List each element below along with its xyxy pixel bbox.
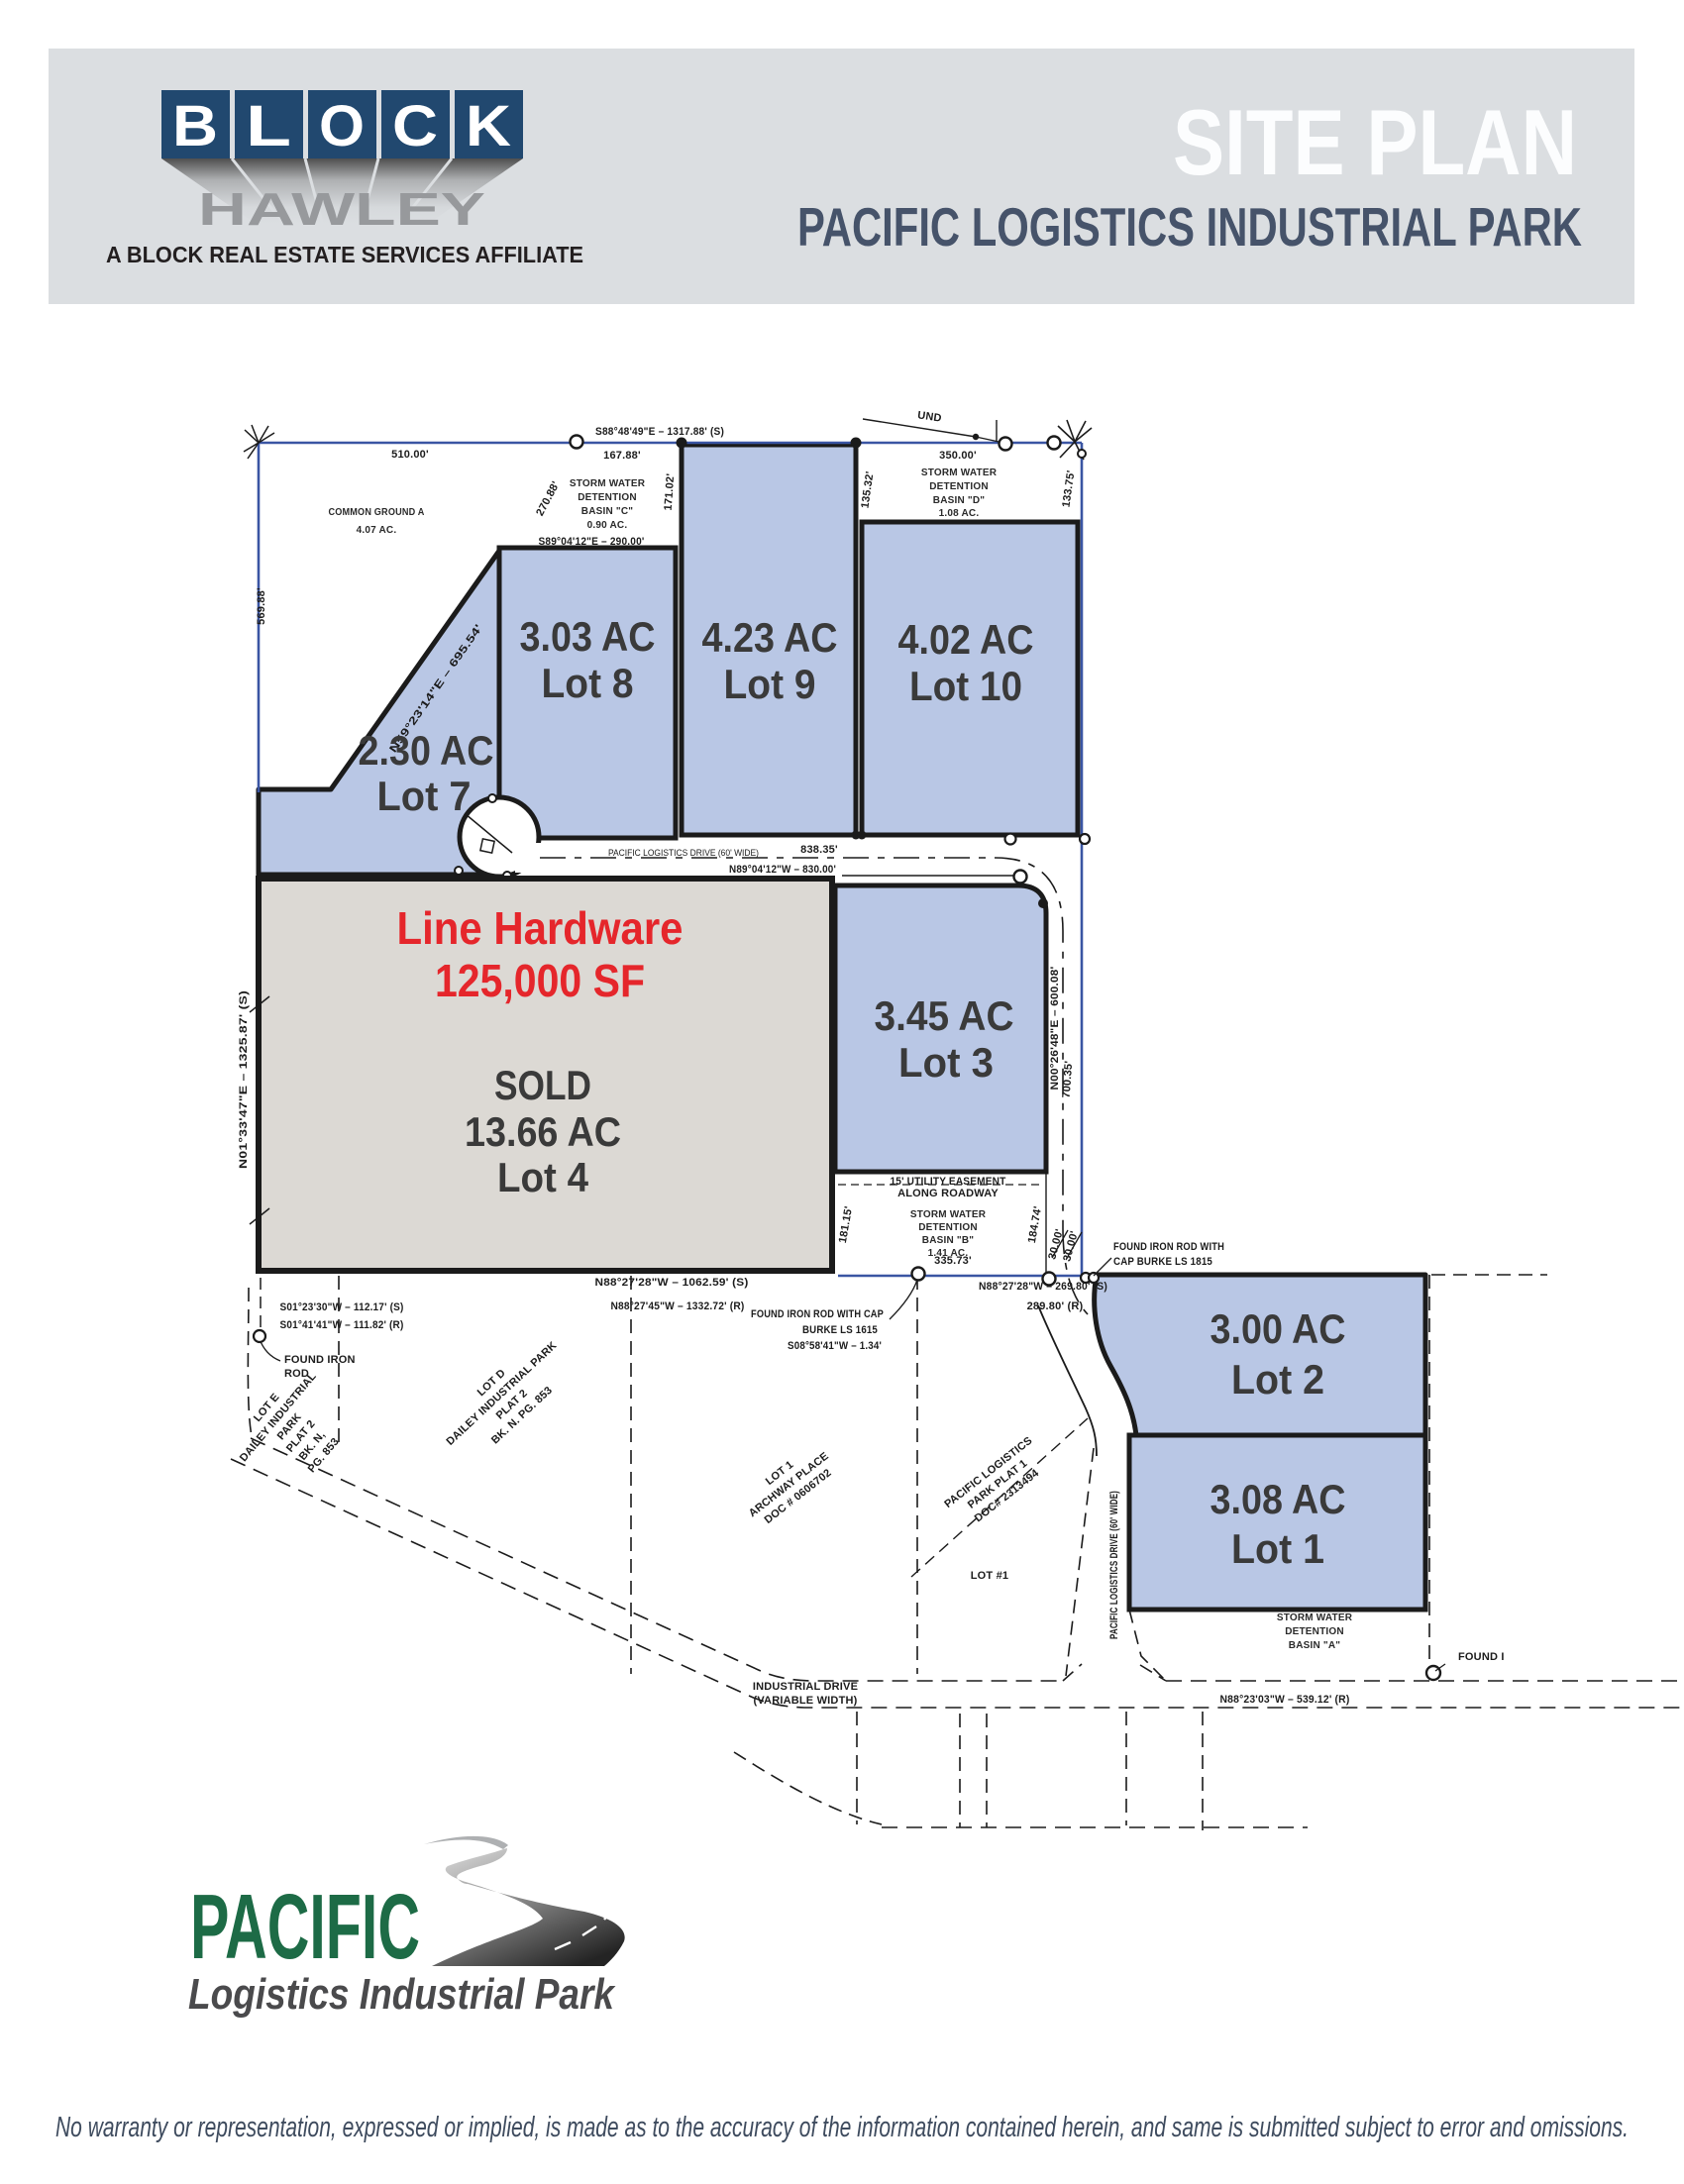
svg-text:CAP BURKE LS 1815: CAP BURKE LS 1815 [1113, 1256, 1212, 1268]
svg-text:Lot 1: Lot 1 [1231, 1525, 1324, 1572]
svg-text:4.07 AC.: 4.07 AC. [357, 525, 397, 536]
svg-text:133.75': 133.75' [1060, 469, 1077, 508]
svg-text:2.30 AC: 2.30 AC [359, 727, 494, 774]
svg-text:S01°41'41"W – 111.82' (R): S01°41'41"W – 111.82' (R) [280, 1319, 404, 1331]
svg-text:SITE PLAN: SITE PLAN [1173, 90, 1577, 194]
svg-text:DETENTION: DETENTION [918, 1222, 978, 1233]
svg-text:4.02 AC: 4.02 AC [898, 616, 1034, 663]
svg-text:181.15': 181.15' [837, 1205, 855, 1244]
svg-text:PACIFIC: PACIFIC [190, 1875, 420, 1978]
svg-text:135.32': 135.32' [859, 470, 876, 509]
svg-text:LOT #1: LOT #1 [971, 1570, 1009, 1582]
svg-text:BASIN "A": BASIN "A" [1289, 1640, 1340, 1651]
svg-text:N01°33'47"E – 1325.87' (S): N01°33'47"E – 1325.87' (S) [238, 990, 250, 1169]
svg-text:270.88': 270.88' [534, 479, 562, 518]
svg-text:STORM WATER: STORM WATER [910, 1209, 987, 1220]
svg-text:B: B [172, 94, 218, 158]
svg-text:0.90 AC.: 0.90 AC. [587, 520, 628, 531]
svg-text:Lot 9: Lot 9 [724, 661, 816, 707]
svg-text:FOUND IRON: FOUND IRON [284, 1354, 356, 1366]
svg-text:Line Hardware: Line Hardware [397, 902, 684, 954]
svg-text:A BLOCK REAL ESTATE SERVICES A: A BLOCK REAL ESTATE SERVICES AFFILIATE [106, 242, 583, 267]
svg-text:15' UTILITY EASEMENT: 15' UTILITY EASEMENT [891, 1176, 1006, 1188]
svg-text:3.03 AC: 3.03 AC [520, 613, 656, 660]
svg-text:350.00': 350.00' [939, 450, 977, 462]
svg-text:S01°23'30"W – 112.17' (S): S01°23'30"W – 112.17' (S) [280, 1301, 404, 1313]
svg-text:S89°04'12"E – 290.00': S89°04'12"E – 290.00' [539, 536, 645, 548]
svg-text:STORM WATER: STORM WATER [570, 478, 646, 489]
svg-text:DETENTION: DETENTION [1285, 1626, 1344, 1637]
svg-text:STORM WATER: STORM WATER [921, 468, 998, 478]
svg-text:HAWLEY: HAWLEY [198, 183, 485, 235]
svg-text:Logistics Industrial Park: Logistics Industrial Park [188, 1970, 616, 2019]
svg-text:3.08 AC: 3.08 AC [1210, 1476, 1346, 1522]
svg-text:167.88': 167.88' [603, 450, 641, 462]
svg-text:S08°58'41"W – 1.34': S08°58'41"W – 1.34' [788, 1340, 882, 1352]
svg-text:N00°26'48"E – 600.08': N00°26'48"E – 600.08' [1049, 966, 1061, 1090]
svg-text:N88°23'03"W – 539.12' (R): N88°23'03"W – 539.12' (R) [1220, 1694, 1350, 1706]
svg-text:PACIFIC LOGISTICS INDUSTRIAL P: PACIFIC LOGISTICS INDUSTRIAL PARK [797, 196, 1582, 258]
svg-text:3.00 AC: 3.00 AC [1210, 1305, 1346, 1352]
svg-text:N88°27'28"W – 1062.59' (S): N88°27'28"W – 1062.59' (S) [595, 1277, 749, 1289]
svg-text:Lot 3: Lot 3 [898, 1039, 994, 1086]
svg-text:DETENTION: DETENTION [929, 481, 989, 492]
svg-text:125,000 SF: 125,000 SF [435, 955, 645, 1006]
svg-text:INDUSTRIAL DRIVE: INDUSTRIAL DRIVE [753, 1681, 858, 1693]
svg-text:Lot 2: Lot 2 [1231, 1356, 1324, 1403]
svg-text:N88°27'28"W – 269.80' (S): N88°27'28"W – 269.80' (S) [979, 1281, 1107, 1293]
svg-text:4.23 AC: 4.23 AC [702, 614, 838, 661]
svg-text:FOUND IRON ROD WITH CAP: FOUND IRON ROD WITH CAP [751, 1308, 884, 1320]
svg-text:BASIN "C": BASIN "C" [581, 506, 633, 517]
svg-text:BASIN "B": BASIN "B" [922, 1235, 974, 1246]
svg-text:SOLD: SOLD [494, 1062, 591, 1108]
svg-text:PACIFIC LOGISTICS DRIVE (60' W: PACIFIC LOGISTICS DRIVE (60' WIDE) [608, 848, 759, 859]
svg-text:BASIN "D": BASIN "D" [933, 495, 985, 506]
svg-text:Lot 7: Lot 7 [377, 773, 472, 819]
svg-text:N88°27'45"W – 1332.72' (R): N88°27'45"W – 1332.72' (R) [611, 1300, 745, 1312]
svg-text:PACIFIC LOGISTICS DRIVE (60' W: PACIFIC LOGISTICS DRIVE (60' WIDE) [1108, 1491, 1120, 1639]
svg-text:O: O [319, 94, 365, 158]
svg-text:838.35': 838.35' [800, 844, 838, 856]
svg-text:STORM WATER: STORM WATER [1277, 1612, 1353, 1623]
svg-text:N89°04'12"W – 830.00': N89°04'12"W – 830.00' [729, 864, 836, 876]
svg-text:3.45 AC: 3.45 AC [875, 992, 1014, 1039]
svg-text:289.80' (R): 289.80' (R) [1027, 1300, 1084, 1312]
svg-text:Lot 4: Lot 4 [497, 1154, 589, 1200]
svg-text:S88°48'49"E – 1317.88' (S): S88°48'49"E – 1317.88' (S) [595, 426, 724, 438]
svg-text:COMMON GROUND A: COMMON GROUND A [329, 507, 425, 518]
svg-text:ALONG ROADWAY: ALONG ROADWAY [897, 1188, 999, 1199]
svg-text:510.00': 510.00' [391, 449, 429, 461]
svg-text:1.08 AC.: 1.08 AC. [939, 508, 980, 519]
svg-text:Lot 8: Lot 8 [542, 660, 634, 706]
svg-text:Lot 10: Lot 10 [909, 663, 1022, 709]
svg-text:184.74': 184.74' [1026, 1205, 1044, 1244]
svg-text:DETENTION: DETENTION [578, 492, 637, 503]
svg-text:335.73': 335.73' [934, 1255, 972, 1267]
svg-text:No warranty or representation,: No warranty or representation, expressed… [55, 2112, 1629, 2143]
svg-text:FOUND I: FOUND I [1458, 1651, 1505, 1663]
svg-text:171.02': 171.02' [663, 472, 678, 511]
svg-text:L: L [246, 94, 291, 158]
svg-text:C: C [392, 94, 438, 158]
svg-text:(VARIABLE WIDTH): (VARIABLE WIDTH) [753, 1695, 857, 1707]
svg-text:K: K [466, 94, 511, 158]
svg-text:FOUND IRON ROD WITH: FOUND IRON ROD WITH [1113, 1241, 1224, 1253]
svg-text:700.35': 700.35' [1061, 1060, 1076, 1098]
svg-text:UND: UND [916, 409, 942, 424]
svg-text:569.88': 569.88' [256, 587, 267, 625]
svg-text:BURKE LS 1615: BURKE LS 1615 [802, 1324, 878, 1336]
svg-text:13.66 AC: 13.66 AC [465, 1108, 621, 1155]
